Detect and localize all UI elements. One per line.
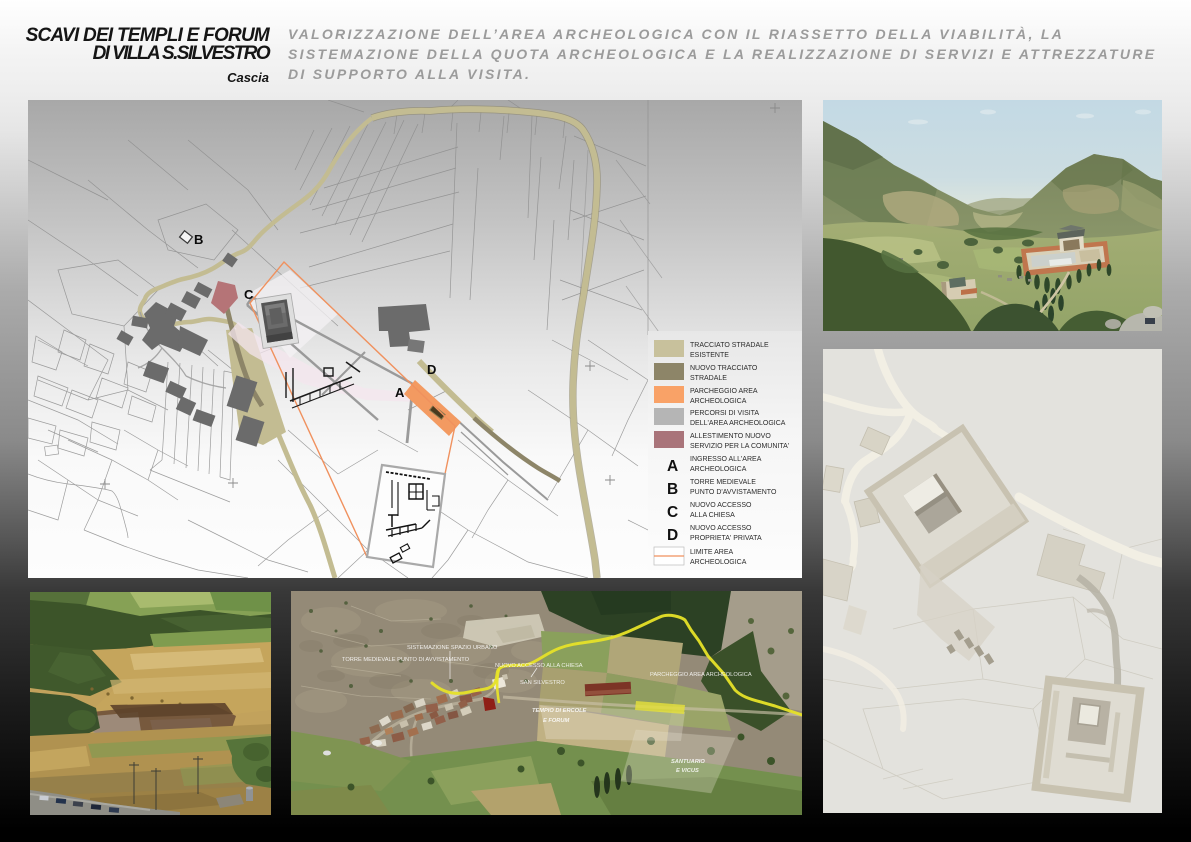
svg-text:LIMITE AREA: LIMITE AREA (690, 549, 734, 556)
svg-text:ESISTENTE: ESISTENTE (690, 352, 729, 359)
svg-text:NUOVO TRACCIATO: NUOVO TRACCIATO (690, 365, 758, 372)
svg-text:ARCHEOLOGICA: ARCHEOLOGICA (690, 466, 747, 473)
svg-text:C: C (244, 287, 254, 302)
svg-text:DELL'AREA ARCHEOLOGICA: DELL'AREA ARCHEOLOGICA (690, 420, 786, 427)
svg-text:B: B (194, 232, 203, 247)
svg-text:TORRE MEDIEVALE PUNTO DI AVVIS: TORRE MEDIEVALE PUNTO DI AVVISTAMENTO (342, 657, 470, 663)
svg-text:D: D (427, 362, 436, 377)
svg-text:NUOVO ACCESSO: NUOVO ACCESSO (690, 502, 752, 509)
svg-text:ALLESTIMENTO NUOVO: ALLESTIMENTO NUOVO (690, 433, 771, 440)
svg-text:NUOVO ACCESSO: NUOVO ACCESSO (690, 525, 752, 532)
svg-text:NUOVO ACCESSO ALLA CHIESA: NUOVO ACCESSO ALLA CHIESA (495, 663, 583, 669)
svg-text:PARCHEGGIO AREA: PARCHEGGIO AREA (690, 388, 758, 395)
svg-text:SISTEMAZIONE SPAZIO URBANO: SISTEMAZIONE SPAZIO URBANO (407, 645, 498, 651)
svg-text:A: A (395, 385, 405, 400)
svg-text:TORRE MEDIEVALE: TORRE MEDIEVALE (690, 479, 756, 486)
svg-text:ALLA CHIESA: ALLA CHIESA (690, 512, 735, 519)
svg-text:SERVIZIO PER LA COMUNITA': SERVIZIO PER LA COMUNITA' (690, 443, 789, 450)
svg-text:PARCHEGGIO AREA ARCHEOLOGICA: PARCHEGGIO AREA ARCHEOLOGICA (650, 672, 752, 678)
svg-text:SAN SILVESTRO: SAN SILVESTRO (520, 680, 565, 686)
svg-text:INGRESSO ALL'AREA: INGRESSO ALL'AREA (690, 456, 762, 463)
svg-text:E VICUS: E VICUS (676, 768, 699, 774)
svg-text:C: C (667, 504, 678, 521)
svg-text:SANTUARIO: SANTUARIO (671, 759, 705, 765)
svg-text:E FORUM: E FORUM (543, 718, 569, 724)
svg-text:PERCORSI DI VISITA: PERCORSI DI VISITA (690, 410, 759, 417)
svg-text:B: B (667, 481, 678, 498)
svg-text:PUNTO D'AVVISTAMENTO: PUNTO D'AVVISTAMENTO (690, 489, 777, 496)
svg-text:A: A (667, 458, 678, 475)
svg-text:STRADALE: STRADALE (690, 375, 727, 382)
svg-text:D: D (667, 527, 678, 544)
svg-text:ARCHEOLOGICA: ARCHEOLOGICA (690, 398, 747, 405)
svg-text:TEMPIO DI ERCOLE: TEMPIO DI ERCOLE (532, 708, 587, 714)
svg-text:TRACCIATO STRADALE: TRACCIATO STRADALE (690, 342, 769, 349)
svg-text:PROPRIETA' PRIVATA: PROPRIETA' PRIVATA (690, 535, 762, 542)
svg-text:ARCHEOLOGICA: ARCHEOLOGICA (690, 559, 747, 566)
